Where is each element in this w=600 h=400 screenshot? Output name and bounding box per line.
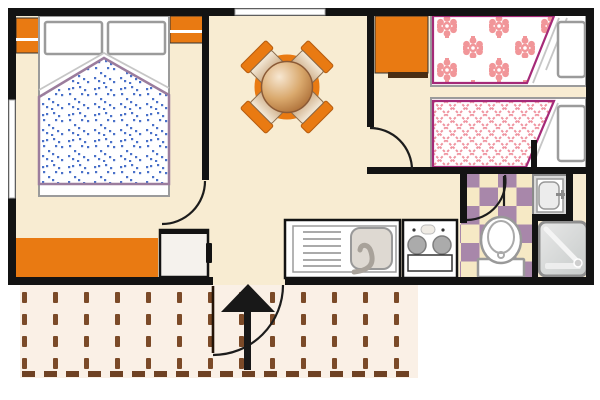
- floor-plan-canvas: [0, 0, 600, 400]
- wall-twin-bedroom: [367, 16, 374, 127]
- floor-plan: [0, 0, 600, 400]
- stove-knob: [421, 225, 435, 234]
- pillow-left: [45, 22, 102, 54]
- stove: [403, 220, 457, 278]
- oven-door: [408, 255, 452, 271]
- wall-under-basin: [532, 214, 573, 221]
- pillow-right: [108, 22, 165, 54]
- wall-bottom-right: [285, 277, 594, 285]
- shower: [539, 222, 587, 276]
- pillow: [558, 106, 585, 161]
- top-wall-window: [235, 9, 325, 15]
- wall-wc-left: [460, 167, 467, 223]
- fridge-handle: [206, 243, 212, 263]
- bench: [16, 238, 158, 277]
- single-bed-floral: [431, 13, 586, 86]
- double-bed: [39, 16, 169, 196]
- toilet: [478, 217, 524, 277]
- wall-shower-left: [532, 221, 538, 277]
- wardrobe: [375, 16, 428, 78]
- wall-nightstand: [170, 16, 203, 43]
- wall-bathroom-top: [367, 167, 586, 174]
- sink-unit: [285, 220, 400, 278]
- wall-master-bedroom: [202, 16, 209, 180]
- left-wall-window: [9, 100, 15, 198]
- pillow: [558, 22, 585, 77]
- burner-left: [408, 236, 426, 254]
- burner-right: [433, 236, 451, 254]
- washbasin: [533, 175, 567, 216]
- shower-drain: [574, 259, 582, 267]
- corner-nightstand: [16, 18, 39, 53]
- entrance-threshold: [213, 277, 285, 285]
- refrigerator: [159, 229, 212, 277]
- terrace-decking-pattern: [20, 285, 418, 373]
- round-table: [262, 62, 313, 113]
- wall-post-beds: [531, 140, 537, 168]
- single-bed-lattice: [431, 98, 586, 170]
- wall-right: [586, 8, 594, 285]
- wall-bottom-left: [8, 277, 213, 285]
- wall-basin-niche: [566, 167, 573, 219]
- terrace: [20, 285, 418, 378]
